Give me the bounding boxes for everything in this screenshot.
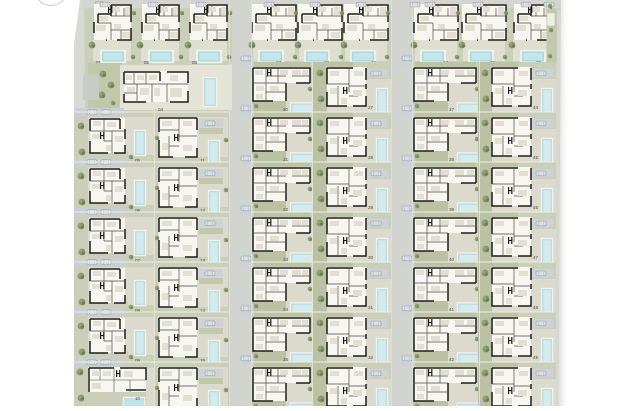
svg-text:41: 41 xyxy=(449,307,455,312)
svg-text:49: 49 xyxy=(533,355,539,360)
svg-text:31: 31 xyxy=(368,305,374,310)
svg-text:29: 29 xyxy=(368,205,374,210)
svg-text:48: 48 xyxy=(533,305,539,310)
svg-text:44: 44 xyxy=(533,105,539,110)
svg-text:46: 46 xyxy=(533,205,539,210)
svg-text:02: 02 xyxy=(144,60,150,65)
svg-text:25: 25 xyxy=(283,357,289,362)
svg-text:23: 23 xyxy=(283,257,289,262)
svg-text:27: 27 xyxy=(368,105,374,110)
svg-text:22: 22 xyxy=(283,207,289,212)
svg-text:30: 30 xyxy=(368,255,374,260)
svg-text:28: 28 xyxy=(368,155,374,160)
svg-text:20: 20 xyxy=(283,107,289,112)
svg-text:21: 21 xyxy=(283,157,289,162)
svg-text:32: 32 xyxy=(368,355,374,360)
svg-text:24: 24 xyxy=(283,307,289,312)
svg-text:10: 10 xyxy=(135,396,141,401)
svg-text:42: 42 xyxy=(449,357,455,362)
svg-text:03: 03 xyxy=(192,60,198,65)
svg-text:45: 45 xyxy=(533,155,539,160)
svg-text:39: 39 xyxy=(449,207,455,212)
svg-text:40: 40 xyxy=(449,257,455,262)
svg-text:47: 47 xyxy=(533,255,539,260)
svg-text:37: 37 xyxy=(449,107,455,112)
svg-text:04: 04 xyxy=(158,107,164,112)
svg-text:38: 38 xyxy=(449,157,455,162)
